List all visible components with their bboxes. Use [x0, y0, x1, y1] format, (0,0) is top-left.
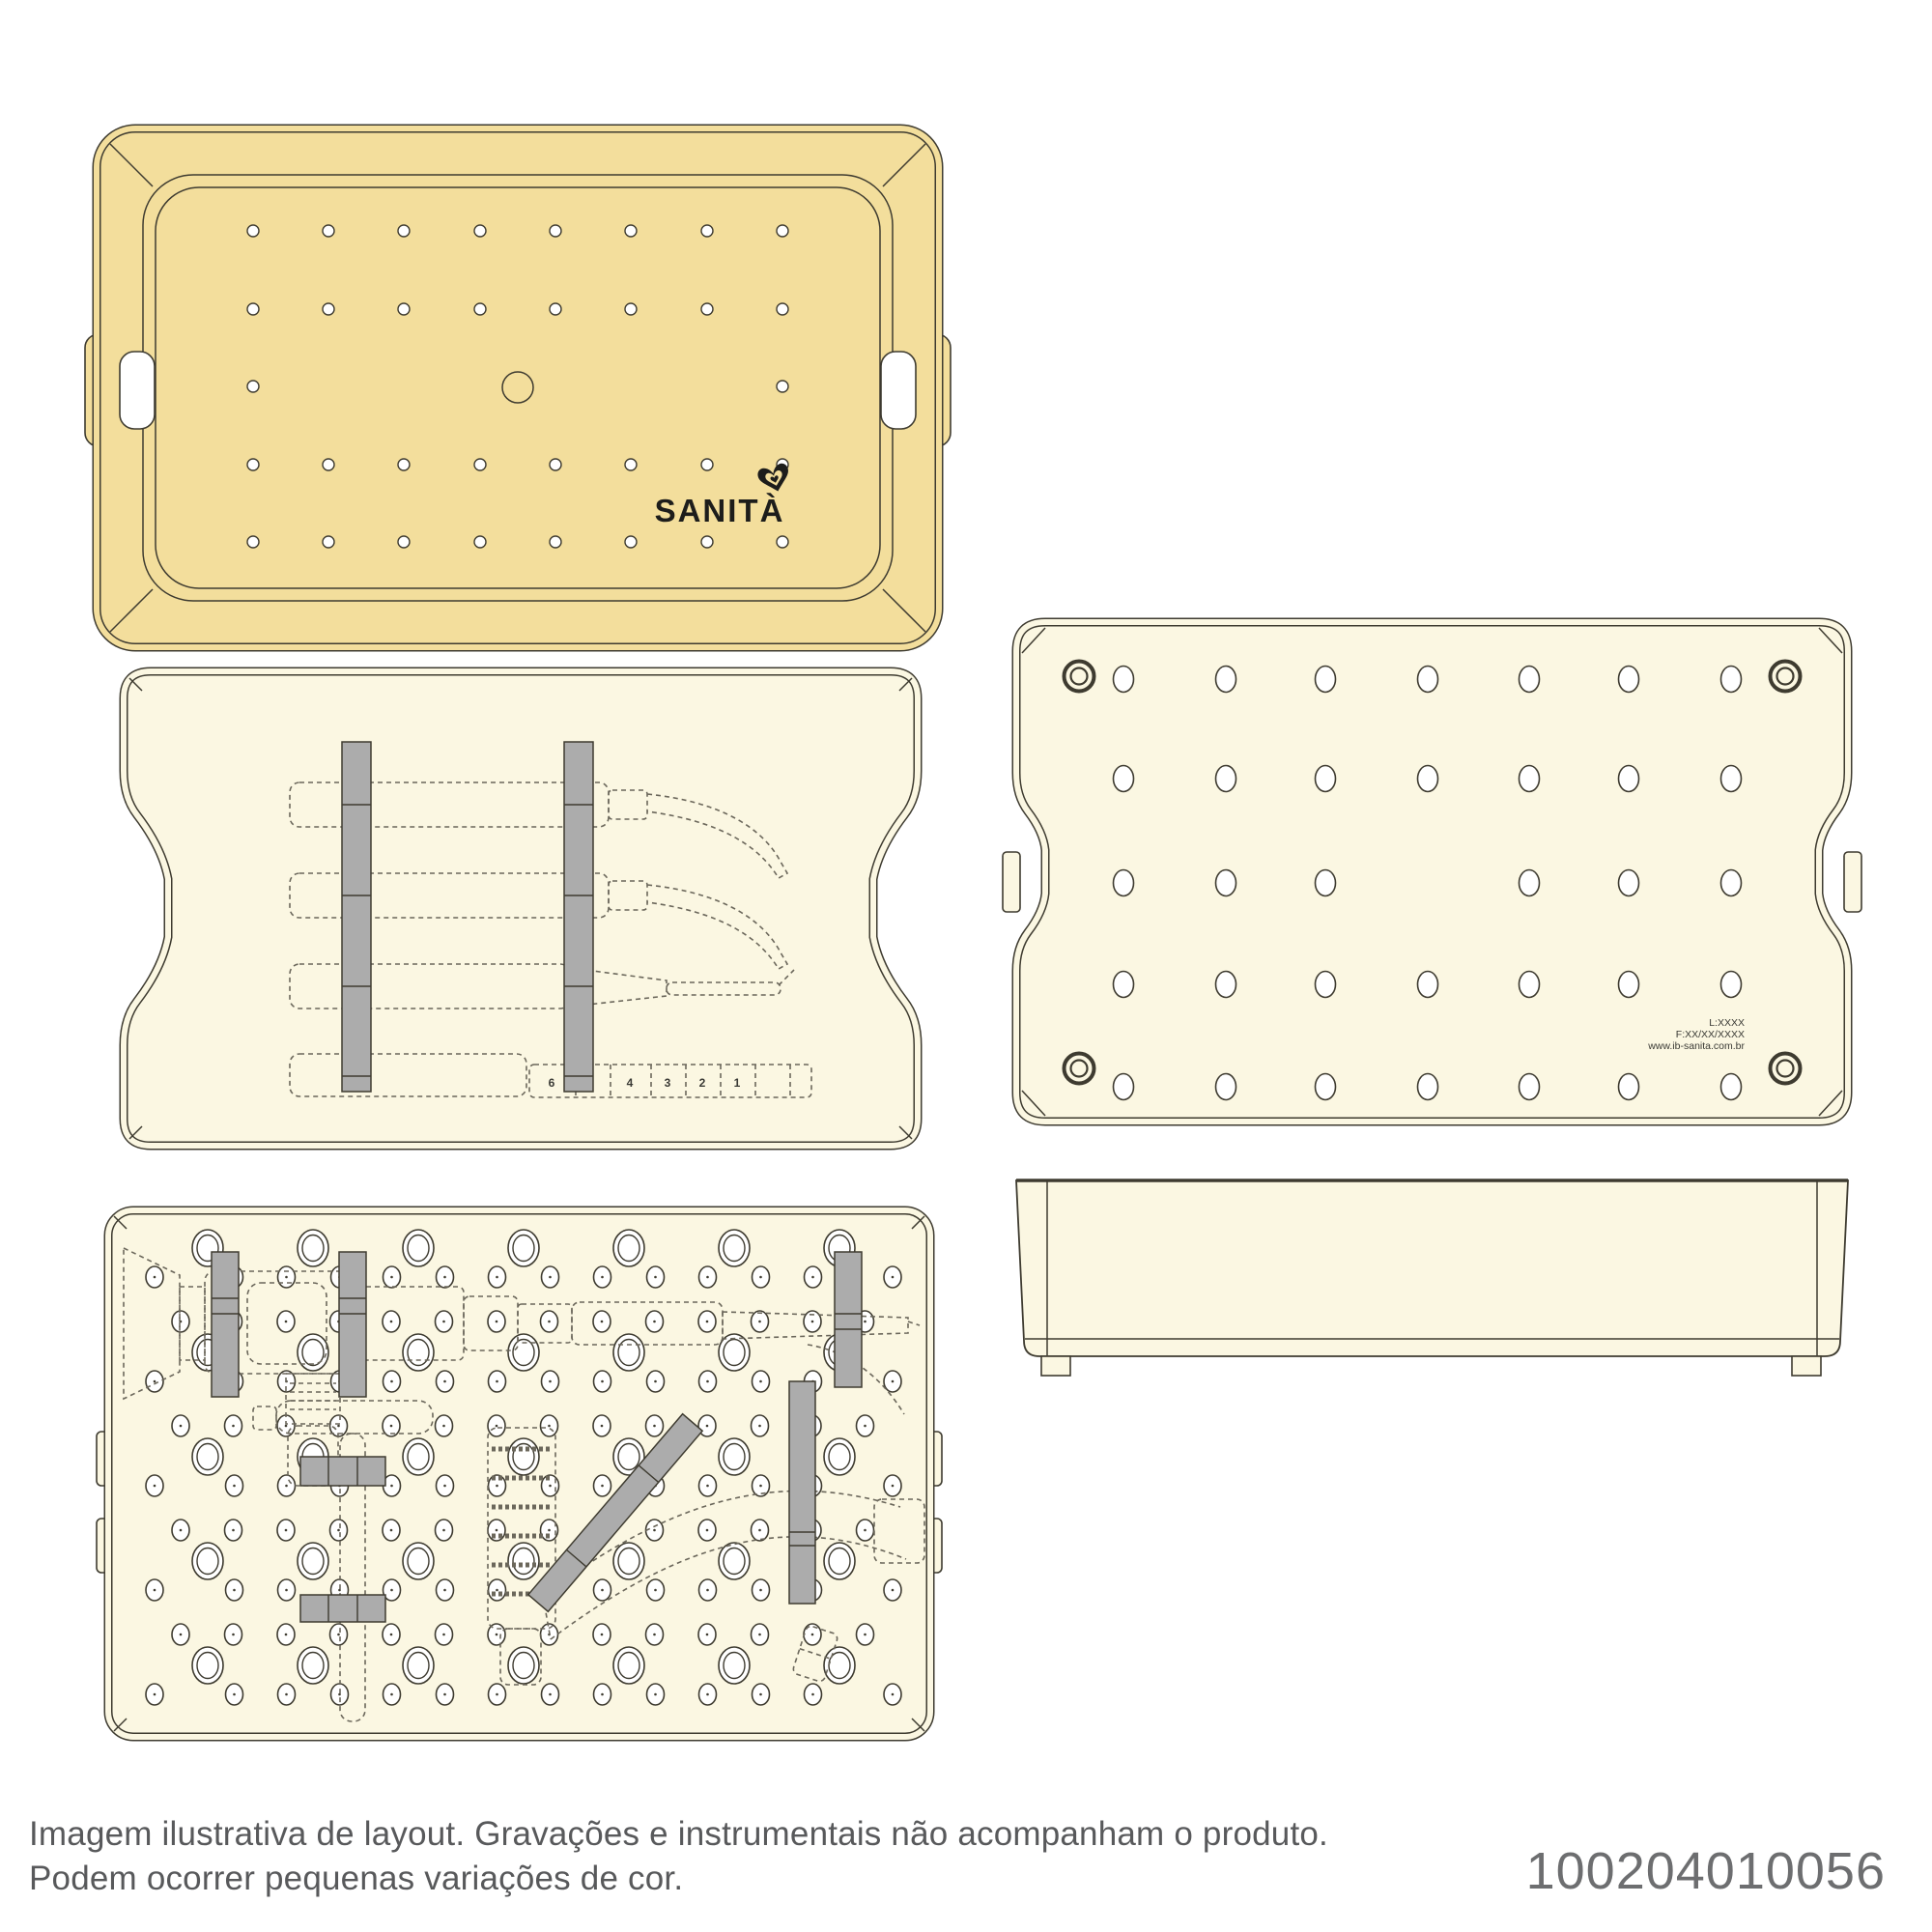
vent-hole — [247, 459, 259, 470]
drain-hole — [1721, 766, 1742, 792]
pin-hole-center — [601, 1425, 604, 1428]
vent-hole — [323, 536, 334, 548]
pin-hole-center — [337, 1529, 340, 1532]
drain-hole — [1216, 766, 1236, 792]
vent-hole — [398, 225, 410, 237]
vent-hole — [247, 536, 259, 548]
ruler-number: 3 — [665, 1076, 671, 1090]
vent-hole — [550, 536, 561, 548]
case-side-body — [1016, 1180, 1848, 1356]
silicone-rail — [564, 742, 593, 1092]
drain-hole — [1216, 667, 1236, 693]
pin-hole-center — [759, 1380, 762, 1383]
pin-hole-center — [285, 1485, 288, 1488]
pin-hole-center — [285, 1276, 288, 1279]
pin-hole-center — [706, 1380, 709, 1383]
pin-hole-center — [549, 1485, 552, 1488]
pin-hole-center — [390, 1321, 393, 1323]
drain-hole — [1316, 870, 1336, 896]
vent-hole — [474, 459, 486, 470]
pin-hole-center — [706, 1321, 709, 1323]
base-latch-tab — [1003, 852, 1020, 912]
drain-hole — [1114, 870, 1134, 896]
technical-drawing: SANITÀ — [0, 0, 1932, 1932]
drain-hole — [1619, 1074, 1639, 1100]
pin-hole-center — [892, 1589, 895, 1592]
drain-hole — [1316, 1074, 1336, 1100]
pin-hole-center — [892, 1693, 895, 1696]
pin-hole-center — [390, 1634, 393, 1636]
pin-hole-center — [758, 1425, 761, 1428]
pin-hole-center — [758, 1321, 761, 1323]
pin-hole-center — [233, 1485, 236, 1488]
vent-hole — [323, 303, 334, 315]
vent-hole — [474, 303, 486, 315]
pin-hole-center — [706, 1589, 709, 1592]
pin-hole-center — [601, 1485, 604, 1488]
silicone-rail — [342, 742, 371, 1092]
pin-hole-center — [601, 1634, 604, 1636]
pin-hole-center — [496, 1693, 498, 1696]
silicone-rail — [789, 1381, 815, 1604]
drain-hole — [1316, 667, 1336, 693]
pin-hole-center — [706, 1276, 709, 1279]
lid-body — [97, 128, 939, 647]
perforated-tray-view — [97, 1210, 942, 1737]
drain-hole — [1721, 667, 1742, 693]
pin-hole-center — [864, 1321, 867, 1323]
vent-hole — [701, 303, 713, 315]
pin-hole-center — [549, 1380, 552, 1383]
pin-hole-center — [758, 1529, 761, 1532]
case-foot — [1792, 1356, 1821, 1376]
drain-hole — [1619, 972, 1639, 998]
silicone-rail — [835, 1252, 862, 1387]
pin-hole-center — [442, 1425, 445, 1428]
pin-hole-center — [758, 1634, 761, 1636]
ruler-number: 4 — [627, 1076, 634, 1090]
pin-hole-center — [601, 1276, 604, 1279]
brand-logo-text: SANITÀ — [655, 493, 785, 528]
pin-hole-center — [706, 1634, 709, 1636]
vent-hole — [625, 303, 637, 315]
pin-hole-center — [285, 1634, 288, 1636]
drain-hole — [1114, 972, 1134, 998]
pin-hole-center — [390, 1529, 393, 1532]
pin-hole-center — [390, 1485, 393, 1488]
case-foot — [1041, 1356, 1070, 1376]
pin-hole-center — [864, 1634, 867, 1636]
pin-hole-center — [337, 1425, 340, 1428]
ruler-number: 6 — [549, 1076, 555, 1090]
drain-hole — [1520, 1074, 1540, 1100]
vent-hole — [247, 303, 259, 315]
pin-hole-center — [285, 1425, 288, 1428]
pin-hole-center — [442, 1634, 445, 1636]
vent-hole — [247, 381, 259, 392]
pin-hole-center — [706, 1425, 709, 1428]
pin-hole-center — [337, 1634, 340, 1636]
pin-hole-center — [443, 1276, 446, 1279]
drain-hole — [1520, 667, 1540, 693]
silicone-rail — [339, 1252, 366, 1397]
disclaimer-line-2: Podem ocorrer pequenas variações de cor. — [29, 1857, 1328, 1901]
pin-hole-center — [653, 1634, 656, 1636]
drain-hole — [1619, 667, 1639, 693]
pin-hole-center — [548, 1425, 551, 1428]
engraving-fabrication: F:XX/XX/XXXX — [1676, 1029, 1745, 1040]
vent-hole — [625, 536, 637, 548]
pin-hole-center — [442, 1321, 445, 1323]
pin-hole-center — [390, 1380, 393, 1383]
lid-top-view: SANITÀ — [85, 128, 951, 647]
vent-hole — [701, 536, 713, 548]
pin-hole-center — [496, 1485, 498, 1488]
pin-hole-center — [442, 1529, 445, 1532]
pin-hole-center — [390, 1693, 393, 1696]
engraving-lot: L:XXXX — [1709, 1017, 1745, 1029]
pin-hole-center — [601, 1380, 604, 1383]
vent-hole — [701, 225, 713, 237]
drain-hole — [1619, 766, 1639, 792]
pin-hole-center — [233, 1693, 236, 1696]
vent-hole — [777, 303, 788, 315]
footer: Imagem ilustrativa de layout. Gravações … — [29, 1812, 1886, 1901]
instrument-tray-view: 6 4 3 2 1 — [124, 671, 918, 1146]
pin-hole-center — [654, 1589, 657, 1592]
pin-hole-center — [232, 1634, 235, 1636]
pin-hole-center — [285, 1321, 288, 1323]
pin-hole-center — [864, 1425, 867, 1428]
vent-hole — [398, 536, 410, 548]
drain-hole — [1619, 870, 1639, 896]
vent-hole — [474, 536, 486, 548]
pin-hole-center — [892, 1485, 895, 1488]
drain-hole — [1418, 766, 1438, 792]
pin-hole-center — [706, 1485, 709, 1488]
pin-hole-center — [390, 1276, 393, 1279]
silicone-bracket — [300, 1595, 385, 1622]
drain-hole — [1520, 766, 1540, 792]
pin-hole-center — [706, 1529, 709, 1532]
pin-hole-center — [653, 1321, 656, 1323]
drain-hole — [1418, 1074, 1438, 1100]
silicone-rail — [212, 1252, 239, 1397]
pin-hole-center — [233, 1589, 236, 1592]
ruler-number: 1 — [734, 1076, 741, 1090]
pin-hole-center — [706, 1693, 709, 1696]
vent-hole — [398, 459, 410, 470]
pin-hole-center — [285, 1529, 288, 1532]
pin-hole-center — [759, 1276, 762, 1279]
base-bottom-view: L:XXXX F:XX/XX/XXXX www.ib-sanita.com.br — [1003, 622, 1861, 1122]
pin-hole-center — [654, 1693, 657, 1696]
pin-hole-center — [759, 1485, 762, 1488]
vent-hole — [701, 459, 713, 470]
pin-hole-center — [390, 1425, 393, 1428]
drain-hole — [1721, 972, 1742, 998]
vent-hole — [323, 225, 334, 237]
vent-hole — [247, 225, 259, 237]
drain-hole — [1721, 1074, 1742, 1100]
vent-hole — [323, 459, 334, 470]
case-side-view — [1016, 1180, 1848, 1376]
pin-hole-center — [180, 1425, 183, 1428]
drain-hole — [1216, 1074, 1236, 1100]
drain-hole — [1216, 972, 1236, 998]
pin-hole-center — [496, 1634, 498, 1636]
base-latch-tab — [1844, 852, 1861, 912]
pin-hole-center — [390, 1589, 393, 1592]
pin-hole-center — [548, 1529, 551, 1532]
pin-hole-center — [154, 1276, 156, 1279]
pin-hole-center — [232, 1425, 235, 1428]
vent-hole — [777, 381, 788, 392]
instrument-tray-body — [124, 671, 918, 1146]
drain-hole — [1216, 870, 1236, 896]
pin-hole-center — [154, 1485, 156, 1488]
product-layout-sheet: SANITÀ — [0, 0, 1932, 1932]
drain-hole — [1114, 766, 1134, 792]
pin-hole-center — [496, 1380, 498, 1383]
pin-hole-center — [443, 1693, 446, 1696]
pin-hole-center — [548, 1321, 551, 1323]
pin-hole-center — [232, 1529, 235, 1532]
silicone-bracket — [300, 1457, 385, 1486]
vent-hole — [398, 303, 410, 315]
disclaimer: Imagem ilustrativa de layout. Gravações … — [29, 1812, 1328, 1901]
pin-hole-center — [653, 1425, 656, 1428]
pin-hole-center — [811, 1693, 814, 1696]
drain-hole — [1418, 972, 1438, 998]
drain-hole — [1721, 870, 1742, 896]
pin-hole-center — [285, 1589, 288, 1592]
engraving-website: www.ib-sanita.com.br — [1647, 1040, 1745, 1052]
pin-hole-center — [601, 1693, 604, 1696]
drain-hole — [1114, 1074, 1134, 1100]
pin-hole-center — [154, 1589, 156, 1592]
pin-hole-center — [892, 1276, 895, 1279]
pin-hole-center — [180, 1529, 183, 1532]
vent-hole — [474, 225, 486, 237]
disclaimer-line-1: Imagem ilustrativa de layout. Gravações … — [29, 1812, 1328, 1857]
pin-hole-center — [759, 1589, 762, 1592]
pin-hole-center — [496, 1321, 498, 1323]
product-code: 100204010056 — [1526, 1841, 1886, 1901]
pin-hole-center — [654, 1380, 657, 1383]
pin-hole-center — [496, 1425, 498, 1428]
pin-hole-center — [759, 1693, 762, 1696]
pin-hole-center — [496, 1589, 498, 1592]
pin-hole-center — [154, 1693, 156, 1696]
drain-hole — [1418, 667, 1438, 693]
pin-hole-center — [601, 1589, 604, 1592]
pin-hole-center — [443, 1380, 446, 1383]
pin-hole-center — [654, 1276, 657, 1279]
pin-hole-center — [892, 1380, 895, 1383]
pin-hole-center — [496, 1276, 498, 1279]
pin-hole-center — [443, 1485, 446, 1488]
drain-hole — [1520, 972, 1540, 998]
pin-hole-center — [180, 1634, 183, 1636]
drain-hole — [1316, 972, 1336, 998]
vent-hole — [550, 303, 561, 315]
lid-right-handle-slot — [881, 352, 916, 429]
pin-hole-center — [811, 1634, 814, 1636]
drain-hole — [1520, 870, 1540, 896]
pin-hole-center — [811, 1276, 814, 1279]
pin-hole-center — [496, 1529, 498, 1532]
vent-hole — [625, 225, 637, 237]
pin-hole-center — [154, 1380, 156, 1383]
vent-hole — [777, 536, 788, 548]
drain-hole — [1114, 667, 1134, 693]
vent-hole — [550, 459, 561, 470]
ruler-number: 2 — [699, 1076, 706, 1090]
pin-hole-center — [285, 1693, 288, 1696]
pin-hole-center — [549, 1276, 552, 1279]
drain-hole — [1316, 766, 1336, 792]
pin-hole-center — [811, 1321, 814, 1323]
vent-hole — [625, 459, 637, 470]
vent-hole — [550, 225, 561, 237]
pin-hole-center — [549, 1693, 552, 1696]
pin-hole-center — [864, 1529, 867, 1532]
pin-hole-center — [653, 1529, 656, 1532]
pin-hole-center — [601, 1321, 604, 1323]
vent-hole — [777, 225, 788, 237]
pin-hole-center — [443, 1589, 446, 1592]
lid-left-handle-slot — [120, 352, 155, 429]
